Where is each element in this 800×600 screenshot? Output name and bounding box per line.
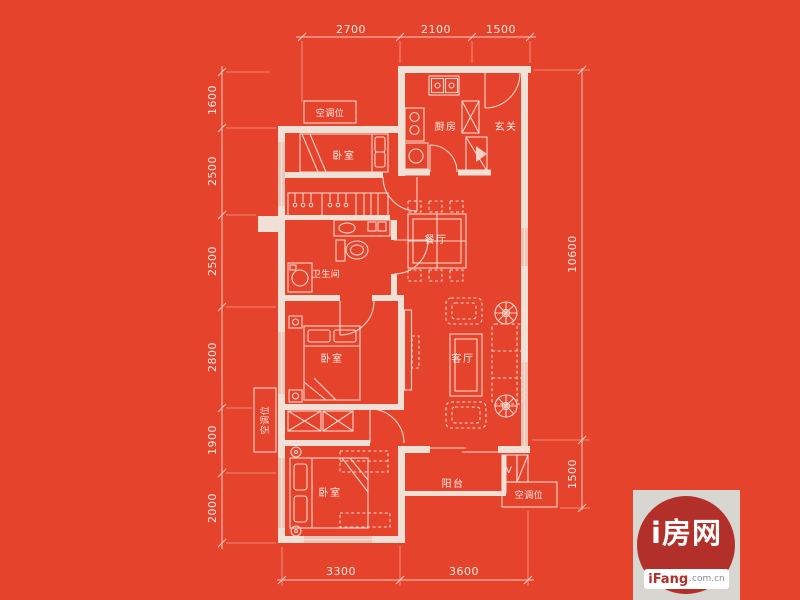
room-label-balcony: 阳台 [442, 477, 465, 490]
pillow-icon [375, 152, 385, 167]
chair-icon [450, 270, 463, 281]
logo-brand-text: i房网 [633, 518, 740, 550]
nightstand-icon [289, 390, 302, 402]
logo-site-text: iFang [648, 572, 688, 587]
plant-icon [495, 395, 517, 417]
logo-url-band: iFang.com.cn [644, 569, 729, 589]
ac-left-label: 空调位 [259, 406, 271, 435]
bathroom-door-arc [394, 240, 428, 274]
room-label-bedroom-top: 卧室 [333, 149, 356, 162]
chair-icon [429, 270, 442, 281]
sofa-icon [492, 324, 522, 404]
dim-left-4: 1900 [206, 425, 219, 455]
sliding-door [428, 448, 500, 452]
toilet-tank-icon [336, 240, 345, 261]
dim-bottom-1: 3600 [449, 565, 479, 578]
room-label-bedroom-middle: 卧室 [321, 352, 344, 365]
tv-icon [412, 336, 419, 368]
pillow-icon [375, 137, 385, 152]
dim-left-3: 2800 [206, 342, 219, 372]
wardrobe-dashed-icon [340, 513, 390, 527]
dim-top-1: 2100 [421, 23, 451, 36]
dimension-right: 10600 1500 [532, 66, 590, 512]
ac-bottom-label: 空调位 [515, 489, 544, 501]
tv-bench-icon [405, 310, 412, 390]
watermark-logo-panel: i房网 iFang.com.cn [633, 490, 740, 600]
bedroom-middle-furniture [288, 316, 360, 431]
armchair-icon [446, 402, 486, 428]
room-label-dining: 餐厅 [425, 233, 448, 246]
lamp-icon [291, 447, 301, 457]
room-label-entry: 玄关 [495, 120, 518, 133]
entry-door-arc [485, 73, 520, 108]
chair-icon [429, 201, 442, 212]
room-label-bathroom: 卫生间 [312, 268, 341, 280]
dim-left-2: 2500 [206, 246, 219, 276]
dimension-bottom: 3300 3600 [277, 511, 534, 586]
pillow-icon [334, 330, 356, 342]
plant-icon [495, 302, 517, 324]
dim-left-5: 2000 [206, 493, 219, 523]
bathroom-fixtures [288, 220, 390, 292]
pillow-icon [294, 496, 307, 522]
dim-bottom-0: 3300 [326, 565, 356, 578]
dim-top-0: 2700 [336, 23, 366, 36]
dim-left-1: 2500 [206, 156, 219, 186]
vent-label: V [506, 466, 513, 476]
logo-domain-text: .com.cn [689, 574, 725, 584]
dimension-top: 2700 2100 1500 [296, 23, 536, 102]
ac-top-label: 空调位 [316, 107, 345, 119]
toilet-icon [346, 241, 368, 259]
dim-right-1: 1500 [566, 459, 579, 489]
chair-icon [408, 270, 421, 281]
kitchen-door-arc [430, 145, 457, 172]
dimension-left: 1600 2500 2500 2800 1900 2000 [206, 66, 276, 549]
dim-top-2: 1500 [486, 23, 516, 36]
walls [258, 66, 531, 543]
floorplan-screenshot: 空调位 空调位 空调位 V 卧室 厨房 玄关 餐厅 卫生间 卧室 客厅 卧室 阳… [0, 0, 800, 600]
chair-icon [450, 201, 463, 212]
pillow-icon [294, 464, 307, 490]
pillow-icon [308, 330, 330, 342]
dim-left-0: 1600 [206, 85, 219, 115]
room-label-living: 客厅 [452, 352, 475, 365]
nightstand-icon [289, 316, 302, 328]
dim-right-0: 10600 [566, 235, 579, 273]
wall-stub [258, 216, 281, 232]
bedroom-bottom-door-arc [370, 409, 404, 443]
room-label-kitchen: 厨房 [435, 120, 458, 133]
basin-icon [339, 223, 355, 233]
armchair-icon [446, 298, 482, 324]
room-label-bedroom-bottom: 卧室 [319, 486, 342, 499]
